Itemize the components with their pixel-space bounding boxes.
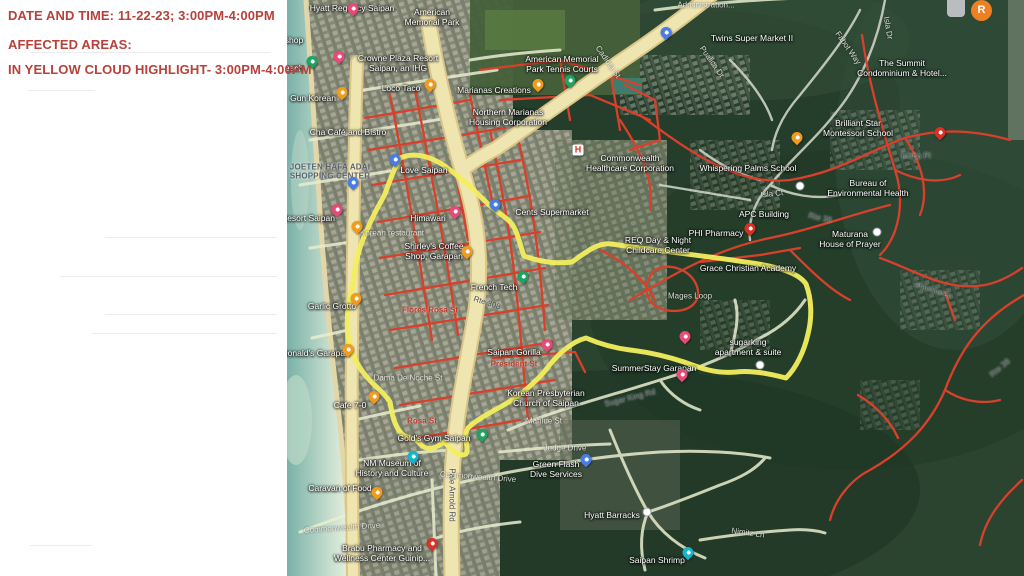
orange-map-pin-icon (530, 77, 546, 93)
blue-map-pin-icon (658, 25, 674, 41)
extension-square-button[interactable] (947, 0, 965, 17)
orange-map-pin-icon (422, 77, 438, 93)
orange-map-pin-icon (369, 485, 385, 501)
orange-map-pin-icon (366, 389, 382, 405)
green-map-pin-icon (474, 427, 490, 443)
rule-line (92, 333, 277, 334)
pink-map-pin-icon (329, 202, 345, 218)
teal-map-pin-icon (680, 545, 696, 561)
pink-map-pin-icon (539, 337, 555, 353)
rule-line (28, 90, 95, 91)
pink-map-pin-icon (674, 367, 690, 383)
blue-map-pin-icon (345, 175, 361, 191)
orange-map-pin-icon (334, 85, 350, 101)
red-map-pin-icon (932, 125, 948, 141)
pink-map-pin-icon (447, 204, 463, 220)
pink-map-pin-icon (677, 329, 693, 345)
highlight-note-text: IN YELLOW CLOUD HIGHLIGHT- 3:00PM-4:00PM (8, 62, 312, 77)
green-map-pin-icon (515, 269, 531, 285)
red-map-pin-icon (742, 221, 758, 237)
orange-map-pin-icon (349, 219, 365, 235)
pink-map-pin-icon (345, 1, 361, 17)
rule-line (60, 276, 277, 277)
green-map-pin-icon (562, 73, 578, 89)
poi-dot-icon (873, 228, 882, 237)
orange-map-pin-icon (459, 244, 475, 260)
rule-line (30, 545, 92, 546)
rule-line (105, 314, 277, 315)
rule-line (105, 237, 277, 238)
affected-areas-text: AFFECTED AREAS: (8, 37, 132, 52)
orange-map-pin-icon (348, 291, 364, 307)
teal-map-pin-icon (405, 449, 421, 465)
orange-map-pin-icon (789, 130, 805, 146)
poi-dot-icon (756, 361, 765, 370)
pink-map-pin-icon (331, 49, 347, 65)
poi-dot-icon (643, 508, 652, 517)
recorder-button[interactable]: R (971, 0, 992, 21)
orange-map-pin-icon (340, 342, 356, 358)
blue-map-pin-icon (578, 452, 594, 468)
annotation-panel: DATE AND TIME: 11-22-23; 3:00PM-4:00PM A… (0, 0, 287, 576)
date-time-text: DATE AND TIME: 11-22-23; 3:00PM-4:00PM (8, 8, 275, 23)
hospital-icon: H (573, 145, 584, 156)
blue-map-pin-icon (387, 152, 403, 168)
red-map-pin-icon (424, 536, 440, 552)
slide: Hyatt Regency SaipanAmerican Memorial Pa… (0, 0, 1024, 576)
rule-line (30, 52, 270, 53)
poi-dot-icon (796, 182, 805, 191)
blue-map-pin-icon (487, 197, 503, 213)
